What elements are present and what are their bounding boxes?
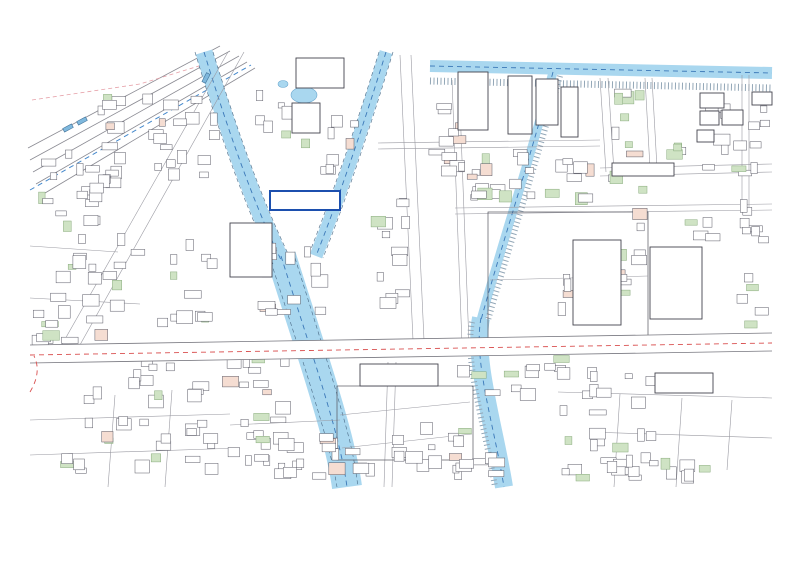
building	[240, 382, 249, 388]
building	[256, 90, 262, 100]
building	[684, 469, 693, 481]
building	[282, 106, 293, 119]
building	[129, 378, 140, 389]
building	[641, 453, 650, 463]
building	[441, 166, 456, 176]
building	[685, 220, 697, 226]
vehicle-icon	[77, 117, 88, 125]
building	[83, 295, 99, 307]
building	[110, 300, 124, 311]
building	[131, 249, 145, 255]
building	[625, 374, 632, 379]
building	[205, 463, 218, 474]
building	[177, 311, 193, 324]
building	[759, 237, 769, 243]
building	[271, 417, 286, 423]
large-building	[612, 163, 674, 176]
building	[86, 166, 100, 173]
building	[77, 191, 88, 199]
main-road	[30, 333, 772, 363]
building	[527, 365, 540, 371]
building	[114, 262, 126, 268]
building	[185, 112, 199, 124]
building	[155, 163, 162, 170]
building	[241, 419, 248, 426]
building	[737, 294, 748, 303]
building	[106, 123, 115, 130]
large-building	[360, 364, 438, 386]
building	[56, 271, 70, 283]
building	[85, 418, 93, 428]
large-building	[752, 92, 772, 105]
building	[589, 410, 606, 415]
building	[263, 390, 272, 395]
building	[63, 221, 71, 232]
building	[304, 247, 310, 257]
building	[73, 256, 86, 269]
building	[158, 318, 168, 327]
building	[203, 434, 217, 444]
building	[742, 227, 750, 234]
building	[77, 164, 83, 176]
street-edge	[411, 55, 424, 340]
building	[210, 113, 217, 125]
building	[95, 329, 108, 340]
building	[760, 106, 767, 112]
building	[564, 279, 571, 292]
building	[755, 307, 768, 315]
parcel-line	[340, 402, 470, 415]
building	[631, 397, 645, 408]
building	[276, 402, 291, 415]
large-building	[722, 110, 743, 125]
building	[143, 94, 153, 104]
building	[58, 306, 70, 319]
building	[459, 459, 473, 468]
building	[504, 371, 518, 377]
building	[283, 467, 296, 477]
building	[103, 272, 117, 280]
large-building	[700, 111, 719, 125]
building	[449, 129, 459, 136]
building	[256, 116, 265, 125]
building	[393, 254, 407, 265]
building	[187, 428, 196, 435]
building	[406, 451, 423, 463]
building	[253, 381, 268, 388]
building	[151, 454, 161, 462]
building	[245, 456, 251, 466]
building	[46, 321, 58, 328]
building	[760, 120, 769, 127]
building	[626, 455, 632, 467]
large-building	[458, 72, 488, 130]
building	[188, 389, 202, 402]
building	[473, 459, 488, 465]
pond	[291, 87, 317, 103]
building	[574, 162, 588, 173]
map-graphic	[0, 0, 800, 566]
large-building	[296, 58, 344, 88]
building	[527, 192, 535, 199]
building	[84, 395, 94, 403]
building	[439, 137, 453, 146]
building	[568, 464, 582, 475]
building	[331, 116, 342, 128]
building	[713, 134, 730, 145]
boundary-dash	[32, 62, 212, 100]
building	[249, 368, 261, 374]
building	[744, 274, 753, 282]
building	[43, 331, 60, 341]
building	[525, 168, 533, 174]
building	[442, 153, 457, 161]
building	[613, 443, 629, 452]
street-edge	[600, 78, 606, 172]
street-edge	[378, 140, 600, 143]
building	[90, 183, 104, 193]
building	[328, 128, 334, 139]
street-edge	[400, 55, 413, 340]
building	[209, 130, 219, 139]
building	[288, 296, 301, 305]
building	[350, 121, 358, 127]
building	[149, 364, 157, 370]
building	[734, 141, 747, 150]
building	[745, 321, 758, 328]
building	[597, 388, 612, 397]
building	[625, 142, 632, 148]
building	[453, 136, 466, 144]
building	[545, 189, 559, 197]
building	[311, 263, 321, 276]
building	[327, 155, 339, 166]
building	[159, 119, 165, 127]
building	[168, 169, 179, 180]
building	[661, 458, 670, 469]
building	[62, 454, 73, 464]
building	[43, 198, 53, 203]
building	[637, 223, 644, 231]
building	[638, 429, 645, 441]
building	[140, 419, 149, 426]
building	[33, 310, 44, 318]
building	[565, 437, 572, 445]
building	[207, 259, 217, 269]
building	[177, 150, 186, 163]
large-building	[508, 76, 532, 134]
building	[545, 364, 556, 371]
building	[264, 121, 273, 133]
building	[184, 291, 201, 299]
building	[371, 216, 386, 227]
building	[752, 227, 760, 236]
building	[394, 451, 404, 461]
building	[428, 445, 435, 450]
building	[590, 371, 597, 381]
vehicle-icon	[63, 124, 74, 132]
building	[191, 96, 202, 103]
building	[590, 428, 606, 439]
building	[258, 301, 275, 309]
building	[722, 144, 729, 154]
street-edge	[378, 146, 600, 149]
building	[590, 440, 597, 451]
building	[254, 455, 268, 462]
building	[626, 151, 643, 157]
street-edge	[676, 398, 682, 487]
building	[329, 463, 345, 475]
building	[345, 448, 360, 454]
pond	[278, 81, 288, 88]
building	[198, 312, 213, 321]
scanned-city-map	[0, 0, 800, 566]
street-edge	[30, 246, 118, 252]
building	[562, 469, 569, 475]
building	[84, 215, 98, 225]
building	[326, 164, 333, 173]
building	[160, 145, 172, 150]
building	[750, 142, 761, 148]
building	[377, 272, 383, 281]
large-building	[700, 93, 724, 108]
building	[79, 234, 86, 243]
building	[163, 100, 178, 110]
street-edge	[727, 400, 732, 470]
building	[703, 218, 712, 228]
building	[382, 231, 390, 238]
building	[485, 390, 500, 396]
building	[703, 164, 715, 170]
building	[558, 303, 566, 316]
building	[489, 458, 505, 467]
building	[699, 465, 710, 472]
building	[518, 153, 529, 165]
building	[227, 359, 241, 368]
building	[633, 208, 647, 219]
building	[437, 104, 452, 110]
building	[65, 150, 72, 158]
building	[51, 293, 66, 301]
building	[557, 368, 570, 380]
building	[117, 234, 125, 246]
building	[89, 264, 96, 271]
building	[346, 138, 354, 149]
large-building	[650, 247, 702, 319]
building	[103, 100, 117, 109]
building	[402, 216, 410, 228]
street-edge	[652, 78, 657, 168]
building	[254, 413, 269, 420]
building	[161, 434, 171, 443]
building	[119, 417, 128, 426]
building	[135, 460, 149, 473]
building	[646, 432, 656, 441]
large-building	[697, 130, 714, 142]
building	[200, 172, 209, 178]
building	[567, 174, 582, 182]
building	[615, 93, 623, 104]
building	[155, 391, 163, 400]
building	[115, 152, 126, 164]
building	[197, 420, 207, 427]
building	[140, 375, 153, 385]
building	[50, 173, 56, 180]
building	[635, 91, 644, 100]
building	[56, 211, 67, 216]
building	[93, 387, 102, 399]
building	[154, 134, 167, 144]
building	[706, 234, 721, 241]
building	[499, 191, 511, 202]
building	[320, 434, 334, 442]
building	[279, 438, 294, 450]
building	[650, 461, 659, 466]
building	[576, 474, 590, 481]
large-building	[292, 103, 320, 133]
building	[472, 372, 486, 379]
building	[747, 284, 759, 290]
building	[467, 174, 477, 179]
building	[315, 307, 326, 314]
building	[170, 255, 177, 265]
building	[228, 448, 239, 457]
large-building	[561, 87, 578, 137]
building	[186, 239, 193, 250]
large-building	[230, 223, 272, 277]
building	[554, 356, 570, 363]
building	[61, 337, 78, 343]
building	[740, 218, 749, 228]
building	[167, 160, 176, 168]
building	[612, 127, 619, 139]
building	[632, 255, 647, 264]
building	[301, 139, 309, 148]
target-site-label	[269, 190, 341, 211]
building	[459, 428, 472, 434]
building	[578, 194, 592, 202]
building	[112, 280, 121, 290]
building	[41, 159, 56, 166]
street-edge	[455, 204, 772, 208]
building	[646, 376, 656, 385]
building	[510, 179, 522, 189]
large-building	[536, 79, 558, 125]
building	[457, 365, 469, 377]
building	[102, 143, 118, 150]
building	[286, 252, 295, 264]
building	[421, 422, 433, 434]
building	[87, 316, 103, 323]
building	[472, 191, 487, 198]
building	[489, 471, 504, 477]
large-building	[655, 373, 713, 393]
building	[222, 376, 238, 387]
street-edge	[608, 78, 614, 172]
building	[749, 122, 760, 130]
building	[380, 297, 396, 308]
building	[397, 199, 409, 207]
building	[674, 144, 682, 151]
building	[88, 272, 101, 284]
building	[481, 164, 492, 176]
building	[353, 463, 369, 473]
building	[312, 275, 328, 287]
building	[563, 159, 573, 165]
building	[392, 435, 403, 444]
building	[266, 309, 278, 315]
building	[459, 163, 465, 172]
large-building	[573, 240, 621, 325]
building	[560, 406, 567, 416]
building	[429, 456, 442, 469]
building	[198, 156, 210, 165]
building	[185, 456, 200, 462]
building	[511, 385, 521, 392]
building	[454, 436, 464, 447]
building	[751, 163, 757, 174]
building	[607, 461, 617, 472]
building	[639, 186, 647, 193]
building	[322, 443, 335, 452]
building	[282, 131, 291, 138]
building	[74, 459, 85, 470]
building	[170, 272, 177, 280]
building	[732, 166, 746, 172]
building	[740, 200, 747, 213]
street-edge	[645, 78, 650, 168]
building	[620, 114, 628, 121]
building	[628, 466, 639, 476]
building	[312, 473, 326, 479]
building	[166, 363, 174, 371]
building	[520, 389, 536, 401]
building	[174, 119, 187, 126]
building	[256, 436, 269, 443]
building	[297, 459, 304, 468]
building	[102, 431, 113, 442]
